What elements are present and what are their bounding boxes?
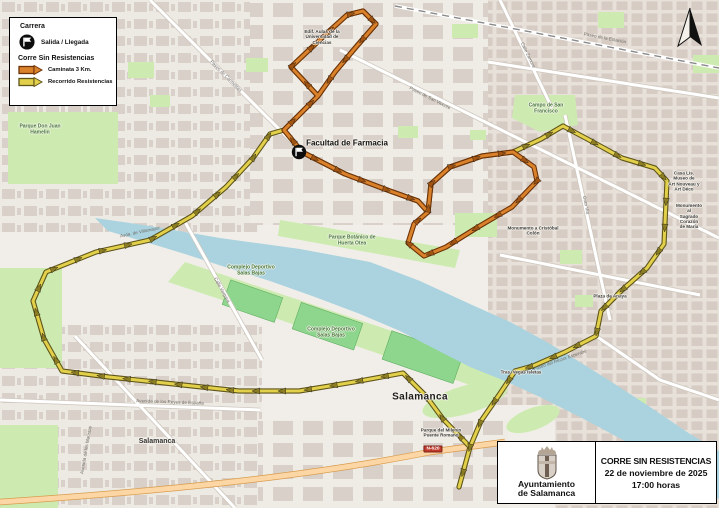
event-title: CORRE SIN RESISTENCIAS [601, 456, 712, 466]
legend-subtitle: Corre Sin Resistencias [18, 55, 116, 62]
event-cell: CORRE SIN RESISTENCIAS 22 de noviembre d… [596, 441, 717, 504]
legend-panel: Carrera Salida / Llegada Corre Sin Resis… [9, 17, 117, 106]
legend-caminata-label: Caminata 3 Km. [48, 67, 92, 73]
resistencias-route-icon [18, 77, 43, 87]
legend-resistencias-label: Recorrido Resistencias [48, 79, 112, 85]
organizer-name: Ayuntamiento de Salamanca [518, 480, 575, 499]
start-finish-marker [292, 145, 306, 159]
road-ref-badge: N-620 [423, 446, 442, 453]
legend-start-finish-label: Salida / Llegada [41, 39, 89, 46]
caminata-route-icon [18, 65, 43, 75]
race-map: Facultad de Farmacia Edif. Aulas de la U… [0, 0, 719, 508]
event-date: 22 de noviembre de 2025 [605, 468, 708, 478]
organizer-cell: Ayuntamiento de Salamanca [497, 441, 596, 504]
event-info-panel: Ayuntamiento de Salamanca CORRE SIN RESI… [497, 441, 717, 504]
event-time: 17:00 horas [632, 480, 680, 490]
start-finish-icon [18, 33, 36, 51]
river-island [503, 399, 563, 439]
legend-title: Carrera [20, 23, 116, 30]
salamanca-coat-of-arms [532, 444, 562, 480]
